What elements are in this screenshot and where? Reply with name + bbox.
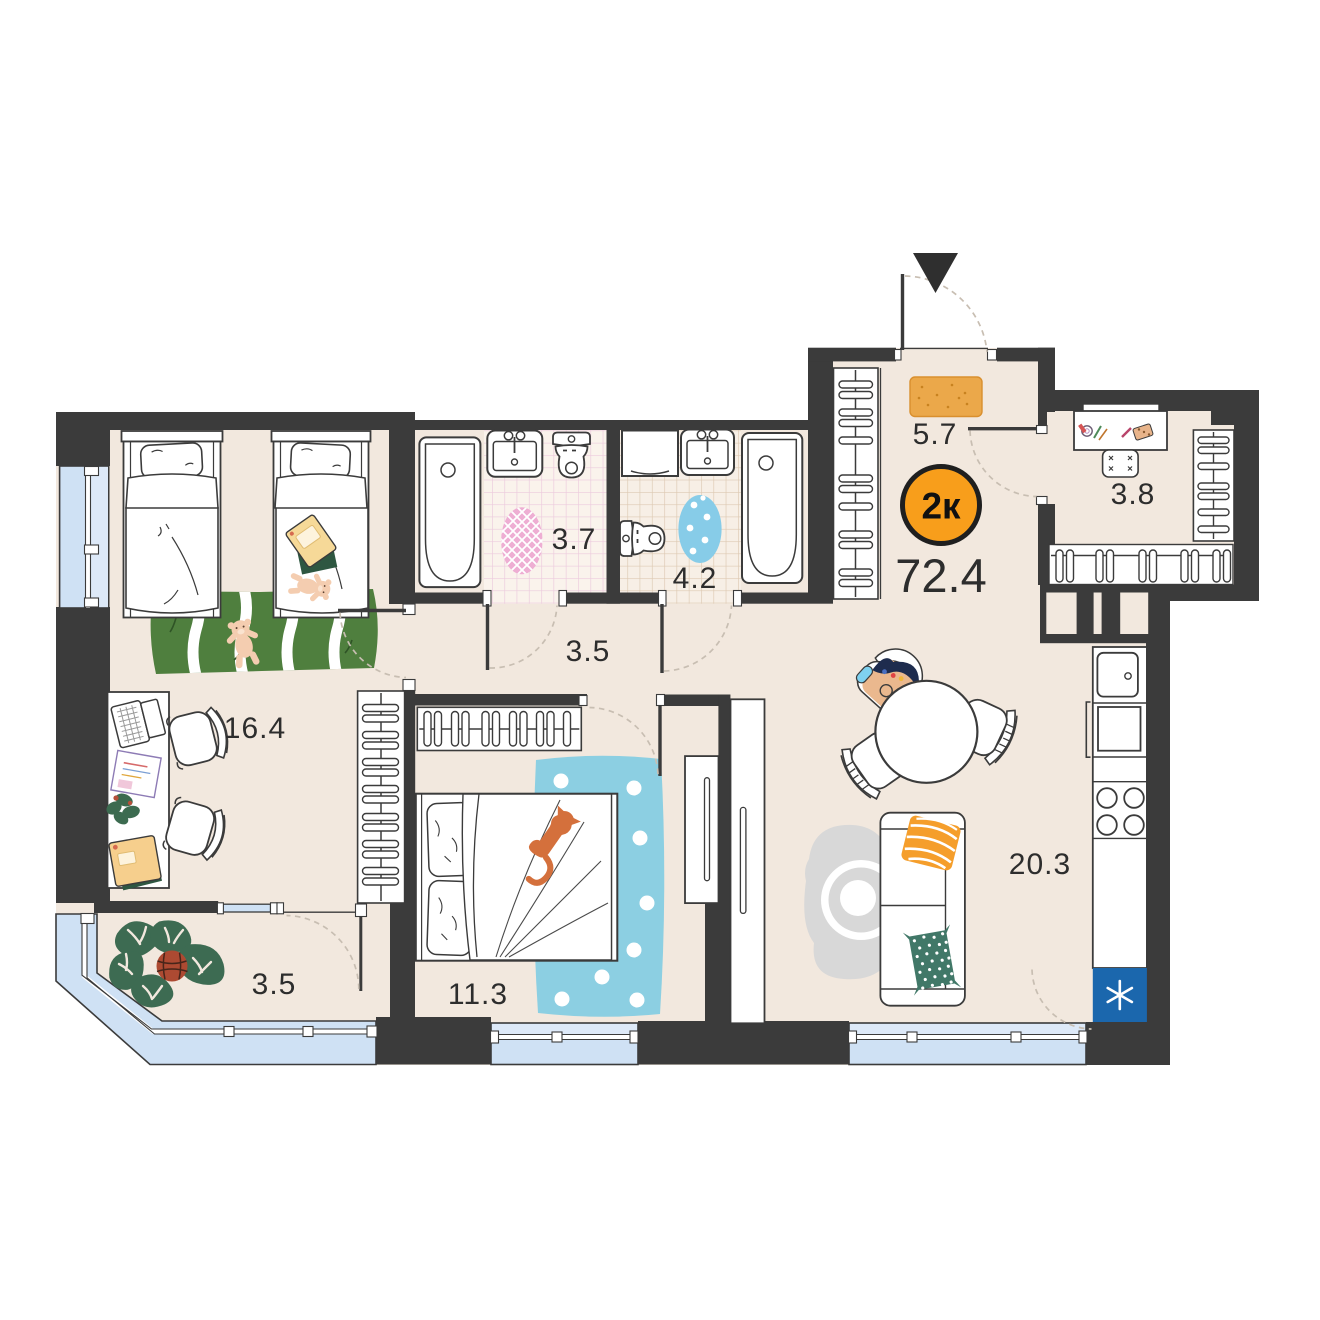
svg-text:2к: 2к — [921, 486, 961, 527]
svg-text:16.4: 16.4 — [224, 712, 286, 745]
svg-text:3.8: 3.8 — [1111, 478, 1156, 511]
svg-text:3.7: 3.7 — [552, 523, 597, 556]
svg-text:11.3: 11.3 — [448, 978, 508, 1011]
svg-text:5.7: 5.7 — [913, 418, 958, 451]
svg-text:72.4: 72.4 — [895, 549, 986, 602]
svg-text:4.2: 4.2 — [673, 562, 718, 595]
svg-text:3.5: 3.5 — [566, 635, 611, 668]
svg-text:3.5: 3.5 — [252, 968, 297, 1001]
svg-text:20.3: 20.3 — [1009, 848, 1071, 881]
